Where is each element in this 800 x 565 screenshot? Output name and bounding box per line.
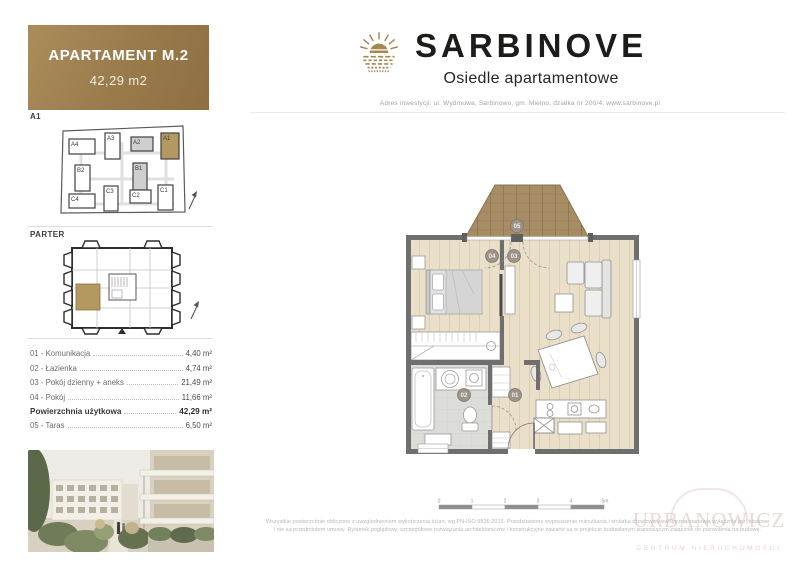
table-row: 04 - Pokój 11,66 m²	[30, 387, 212, 401]
room-label: 02 - Łazienka	[30, 364, 77, 373]
svg-text:3: 3	[537, 499, 540, 505]
sideboard	[505, 266, 515, 314]
badge-bedroom: 04	[486, 250, 499, 263]
brand-subtitle: Osiedle apartamentowe	[443, 70, 618, 88]
room-label: 05 - Taras	[30, 421, 65, 430]
apartment-floor-plan: 05 04 03 02 01	[400, 182, 645, 472]
svg-text:5m: 5m	[602, 499, 609, 505]
bathtub	[412, 368, 434, 430]
dotted-leader	[68, 399, 179, 400]
entrance-opening	[508, 449, 535, 454]
nightstand	[412, 256, 425, 269]
door-mullion	[511, 234, 523, 242]
svg-text:2: 2	[504, 499, 507, 505]
dotted-leader	[127, 384, 178, 385]
render-far-building	[52, 480, 138, 520]
terrace	[460, 185, 595, 240]
watermark-tagline: CENTRUM NIERUCHOMOŚCI	[626, 545, 792, 552]
room-value: 6,50 m²	[186, 421, 212, 430]
nightstand	[412, 316, 425, 329]
svg-text:A3: A3	[107, 136, 115, 142]
apartment-area: 42,29 m2	[90, 73, 147, 88]
svg-text:B1: B1	[135, 166, 143, 172]
coffee-table	[555, 294, 573, 312]
legal-disclaimer: Wszystkie powierzchnie obliczono z uwzgl…	[245, 518, 790, 534]
radiator	[558, 422, 582, 434]
sun-shape	[370, 44, 389, 53]
closet	[492, 432, 510, 448]
svg-text:B2: B2	[77, 168, 85, 174]
bed	[426, 270, 482, 314]
apartment-flyer-page: APARTAMENT M.2 42,29 m2 A1 A4 A3 A2 A1 B…	[0, 0, 800, 565]
svg-text:A2: A2	[133, 140, 141, 146]
wardrobe	[411, 332, 500, 360]
washer-counter	[436, 368, 486, 390]
watermark-arc	[670, 488, 748, 520]
svg-text:03: 03	[511, 254, 518, 260]
shaft-hatch	[534, 418, 554, 433]
svg-text:C2: C2	[132, 193, 140, 199]
render-near-building	[140, 450, 214, 534]
closet	[492, 367, 510, 397]
investment-address: Adres inwestycji: ul. Wydmowa, Sarbinowo…	[250, 100, 790, 107]
svg-text:C1: C1	[160, 188, 168, 194]
toilet	[462, 407, 478, 431]
kitchen-counter	[536, 400, 606, 418]
site-plan-label: A1	[30, 112, 41, 121]
dotted-leader	[93, 355, 182, 356]
left-divider-2	[28, 338, 212, 339]
site-plan-map: A4 A3 A2 A1 B2 B1 C4 C3 C2 C1	[56, 122, 190, 218]
room-value: 11,66 m²	[182, 393, 212, 402]
floor-overview-plan	[52, 238, 194, 336]
table-row-total: Powierzchnia użytkowa 42,29 m²	[30, 402, 212, 416]
room-area-table: 01 - Komunikacja 4,40 m² 02 - Łazienka 4…	[30, 344, 212, 430]
svg-text:02: 02	[461, 393, 468, 399]
table-row: 03 - Pokój dzienny + aneks 21,49 m²	[30, 373, 212, 387]
scale-bar: 0 1 2 3 4 5m	[437, 497, 609, 512]
dotted-leader	[124, 413, 176, 414]
apartment-title: APARTAMENT M.2	[48, 47, 188, 64]
left-divider-1	[28, 226, 212, 227]
building-render-image	[28, 450, 214, 552]
room-value: 4,40 m²	[186, 349, 212, 358]
room-value: 42,29 m²	[179, 407, 212, 416]
svg-text:0: 0	[438, 499, 441, 505]
parter-highlighted-unit	[76, 284, 100, 310]
room-value: 21,49 m²	[181, 378, 212, 387]
svg-text:1: 1	[471, 499, 474, 505]
svg-text:4: 4	[570, 499, 573, 505]
svg-text:04: 04	[489, 254, 496, 260]
bath-cabinet	[425, 434, 451, 445]
room-value: 4,74 m²	[186, 364, 212, 373]
room-label: Powierzchnia użytkowa	[30, 407, 121, 416]
table-row: 02 - Łazienka 4,74 m²	[30, 358, 212, 372]
badge-communication: 01	[509, 389, 522, 402]
badge-terrace: 05	[511, 220, 524, 233]
parter-core	[109, 274, 136, 300]
disclaimer-line-1: Wszystkie powierzchnie obliczono z uwzgl…	[245, 518, 790, 526]
bedroom-partition	[500, 240, 504, 270]
svg-text:C3: C3	[106, 189, 114, 195]
room-label: 03 - Pokój dzienny + aneks	[30, 378, 124, 387]
brand-name: SARBINOVE	[415, 28, 647, 64]
north-arrow-icon	[186, 190, 200, 210]
bathroom-wall	[406, 360, 504, 365]
svg-text:01: 01	[512, 393, 519, 399]
dotted-leader	[80, 370, 183, 371]
radiator	[586, 422, 606, 433]
table-row: 01 - Komunikacja 4,40 m²	[30, 344, 212, 358]
room-label: 01 - Komunikacja	[30, 349, 90, 358]
apartment-header-card: APARTAMENT M.2 42,29 m2	[28, 25, 209, 110]
svg-text:05: 05	[514, 224, 521, 230]
brand-header: SARBINOVE Osiedle apartamentowe	[355, 28, 685, 88]
table-row: 05 - Taras 6,50 m²	[30, 416, 212, 430]
badge-living-room: 03	[508, 250, 521, 263]
scale-labels: 0 1 2 3 4 5m	[438, 499, 609, 505]
dotted-leader	[68, 427, 183, 428]
svg-text:A1: A1	[163, 136, 171, 142]
badge-bathroom: 02	[458, 389, 471, 402]
north-arrow-icon	[188, 300, 202, 320]
sunrise-logo-icon	[355, 28, 403, 78]
svg-text:C4: C4	[71, 197, 79, 203]
header-divider	[250, 112, 785, 113]
room-label: 04 - Pokój	[30, 393, 65, 402]
sliding-door	[500, 274, 503, 316]
svg-text:A4: A4	[71, 142, 79, 148]
disclaimer-line-2: i nie są przedmiotem umowy. Rysunek pogl…	[245, 526, 790, 534]
